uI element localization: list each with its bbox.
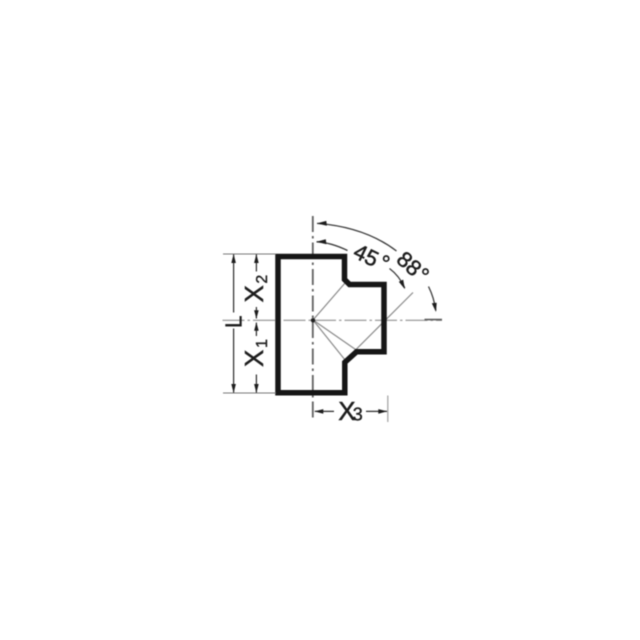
svg-text:X: X: [239, 285, 269, 302]
svg-text:3: 3: [353, 404, 363, 424]
svg-text:2: 2: [254, 275, 271, 284]
svg-text:L: L: [220, 315, 246, 328]
svg-text:1: 1: [254, 339, 271, 348]
svg-text:X: X: [239, 350, 269, 367]
